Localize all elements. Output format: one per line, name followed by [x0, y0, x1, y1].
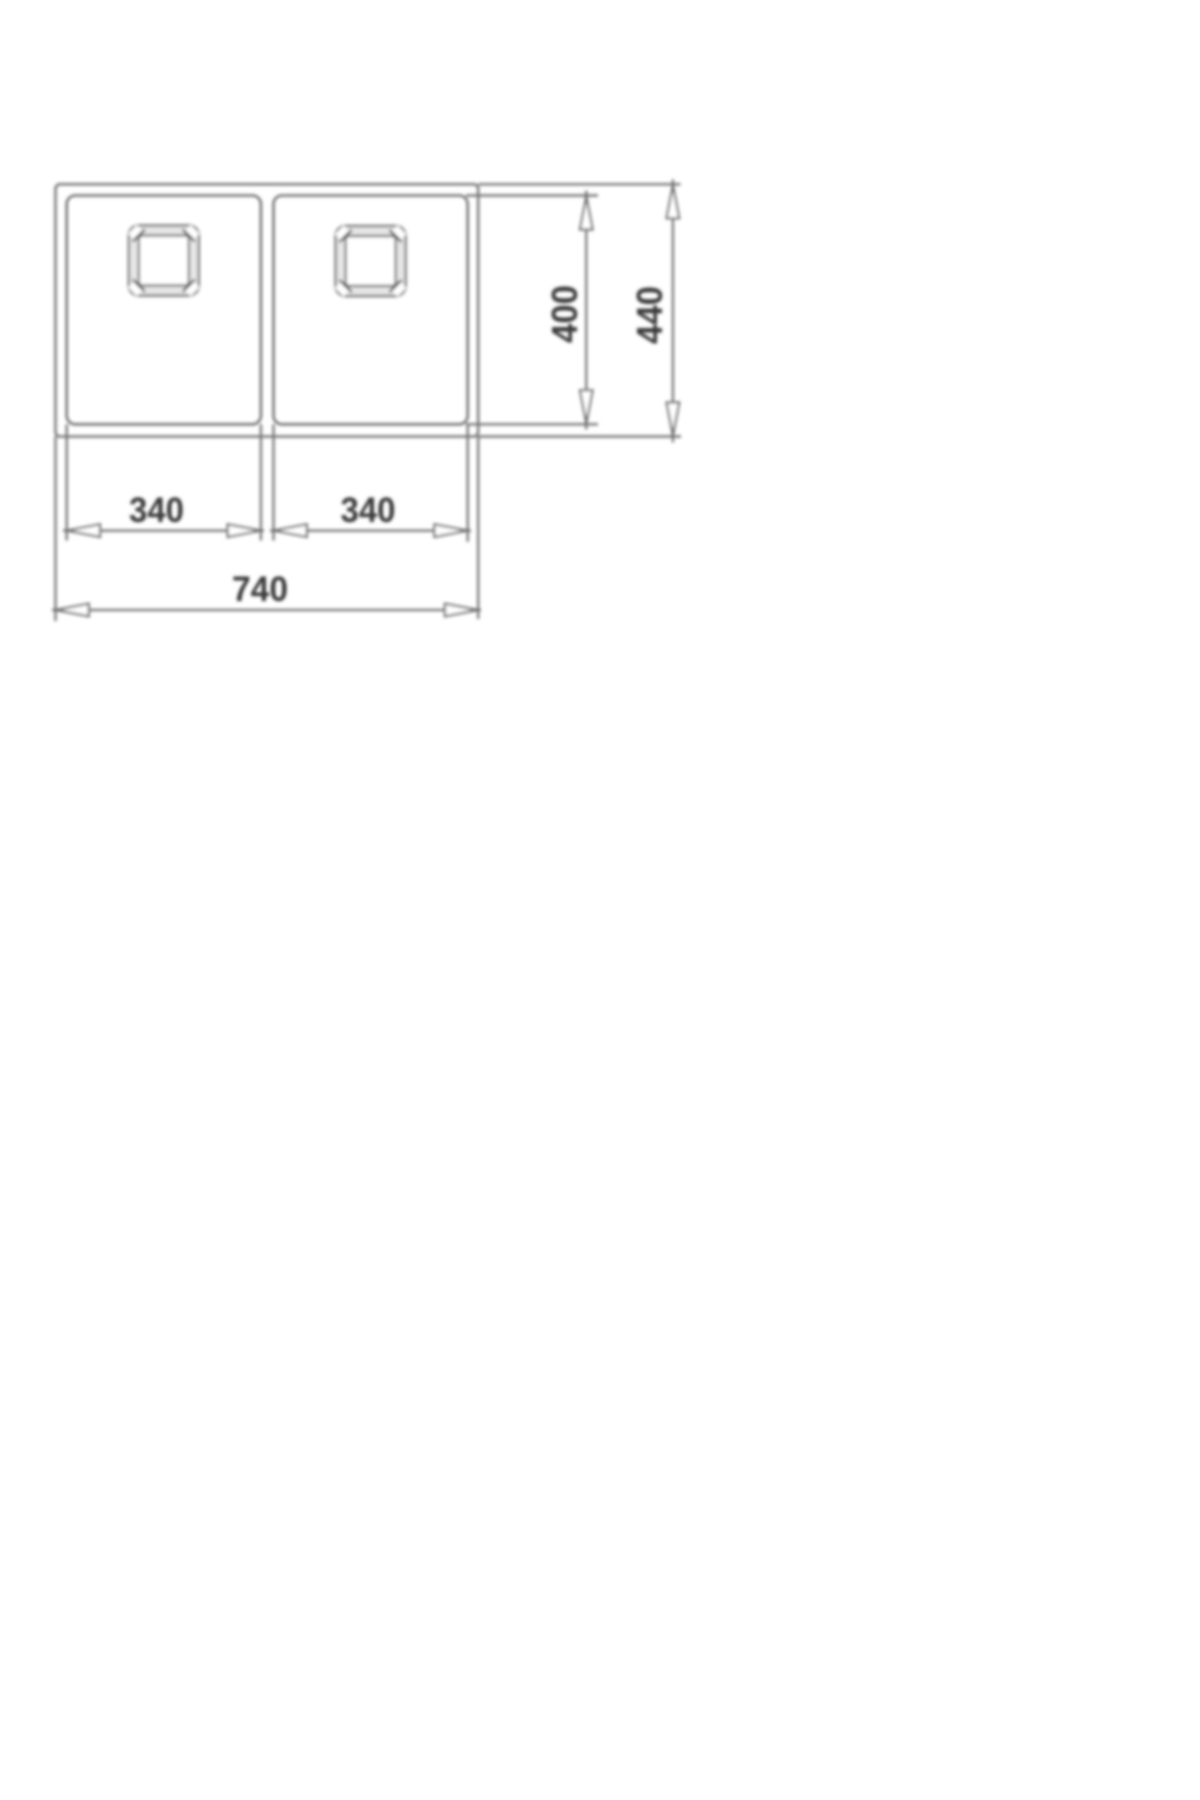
svg-text:740: 740 [232, 570, 288, 609]
svg-text:400: 400 [544, 285, 585, 343]
svg-text:340: 340 [341, 491, 396, 530]
svg-text:340: 340 [129, 491, 184, 530]
svg-text:440: 440 [629, 286, 670, 344]
